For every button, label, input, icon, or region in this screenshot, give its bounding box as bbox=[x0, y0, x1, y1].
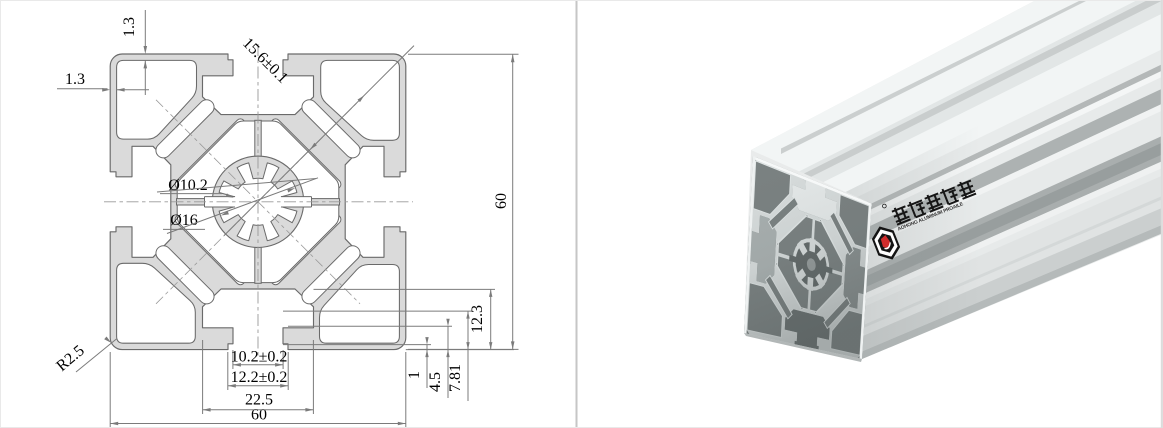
svg-text:Ø16: Ø16 bbox=[170, 212, 198, 229]
svg-text:60: 60 bbox=[493, 193, 510, 209]
svg-text:1: 1 bbox=[406, 371, 423, 379]
svg-text:Ø10.2: Ø10.2 bbox=[168, 177, 208, 194]
svg-text:60: 60 bbox=[251, 407, 267, 424]
svg-text:12.2±0.2: 12.2±0.2 bbox=[231, 369, 288, 386]
svg-text:1.3: 1.3 bbox=[65, 71, 85, 88]
svg-text:22.5: 22.5 bbox=[245, 392, 273, 409]
svg-text:4.5: 4.5 bbox=[427, 372, 444, 392]
svg-text:7.81: 7.81 bbox=[447, 364, 464, 392]
svg-text:1.3: 1.3 bbox=[121, 17, 138, 37]
svg-text:12.3: 12.3 bbox=[469, 305, 486, 333]
svg-text:10.2±0.2: 10.2±0.2 bbox=[231, 349, 288, 366]
